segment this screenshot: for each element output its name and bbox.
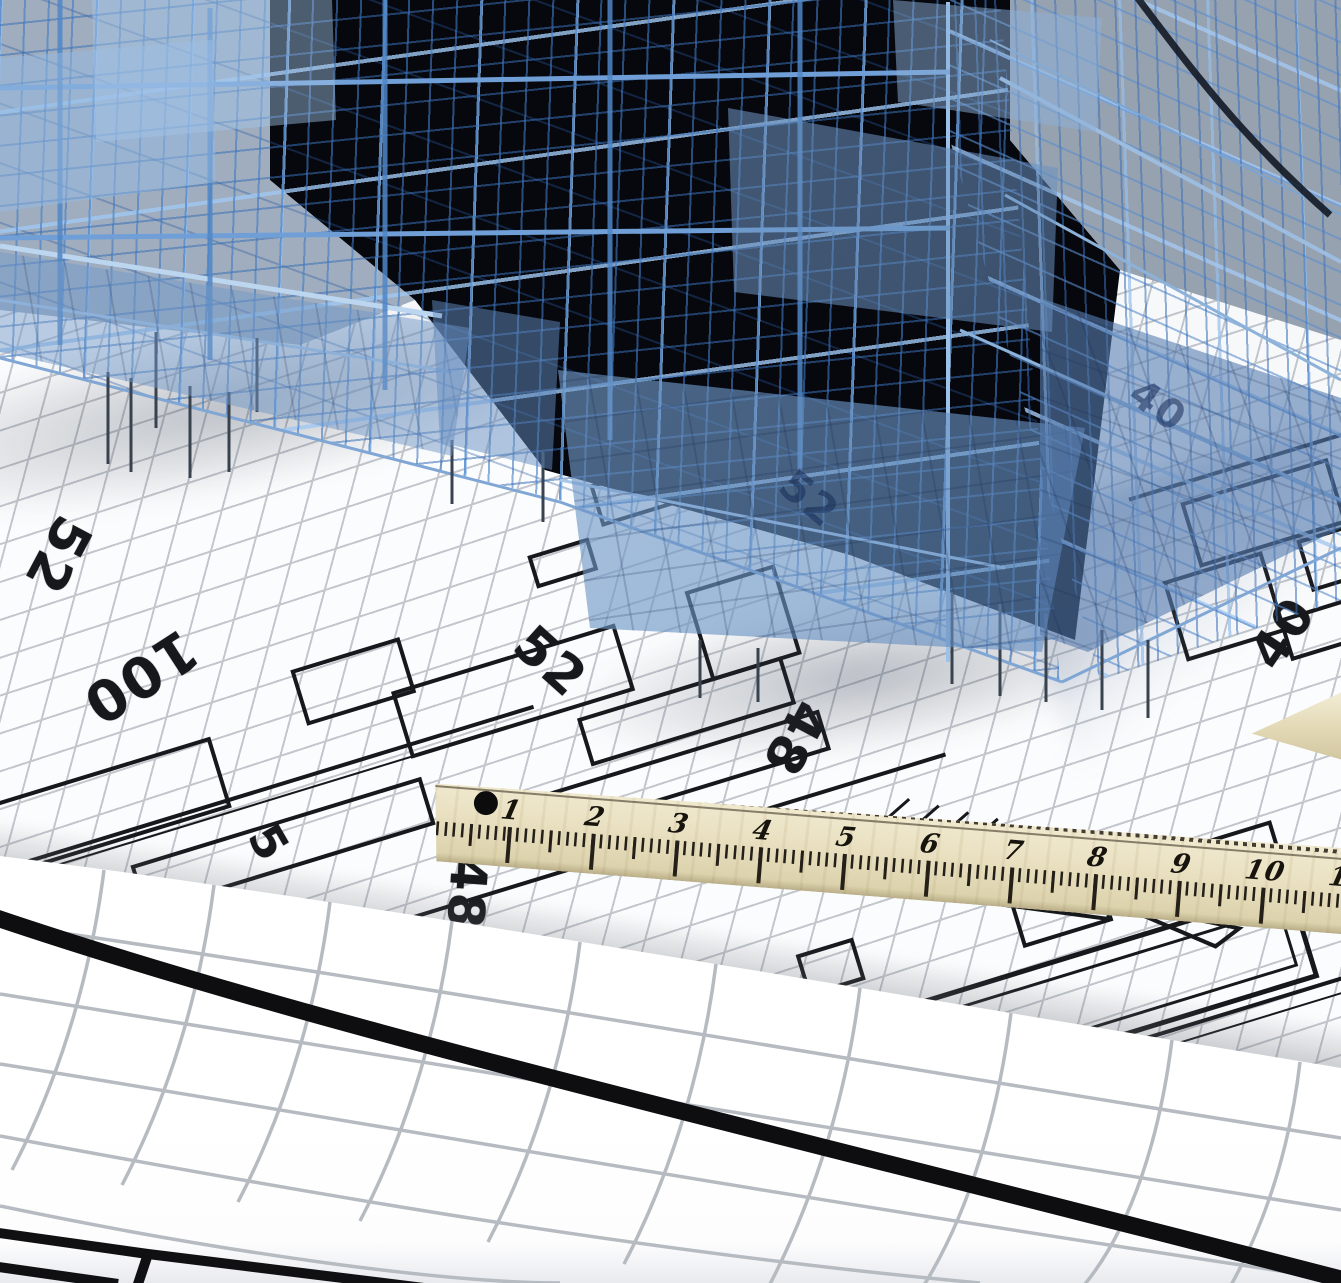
- ruler-number: 6: [917, 828, 944, 860]
- ruler-number: 4: [749, 815, 776, 847]
- ruler-number: 1: [498, 795, 525, 827]
- ruler-number: 8: [1084, 842, 1111, 874]
- ruler-number: 7: [1000, 835, 1027, 867]
- architectural-blueprint-photo: 52100524848540: [0, 0, 1341, 1283]
- ruler-number: 10: [1242, 854, 1288, 888]
- ruler-number: 5: [833, 822, 860, 854]
- ruler-number: 11: [1326, 861, 1341, 895]
- ruler-number: 3: [666, 808, 693, 840]
- ruler-number: 2: [582, 801, 609, 833]
- ruler-number: 9: [1168, 848, 1195, 880]
